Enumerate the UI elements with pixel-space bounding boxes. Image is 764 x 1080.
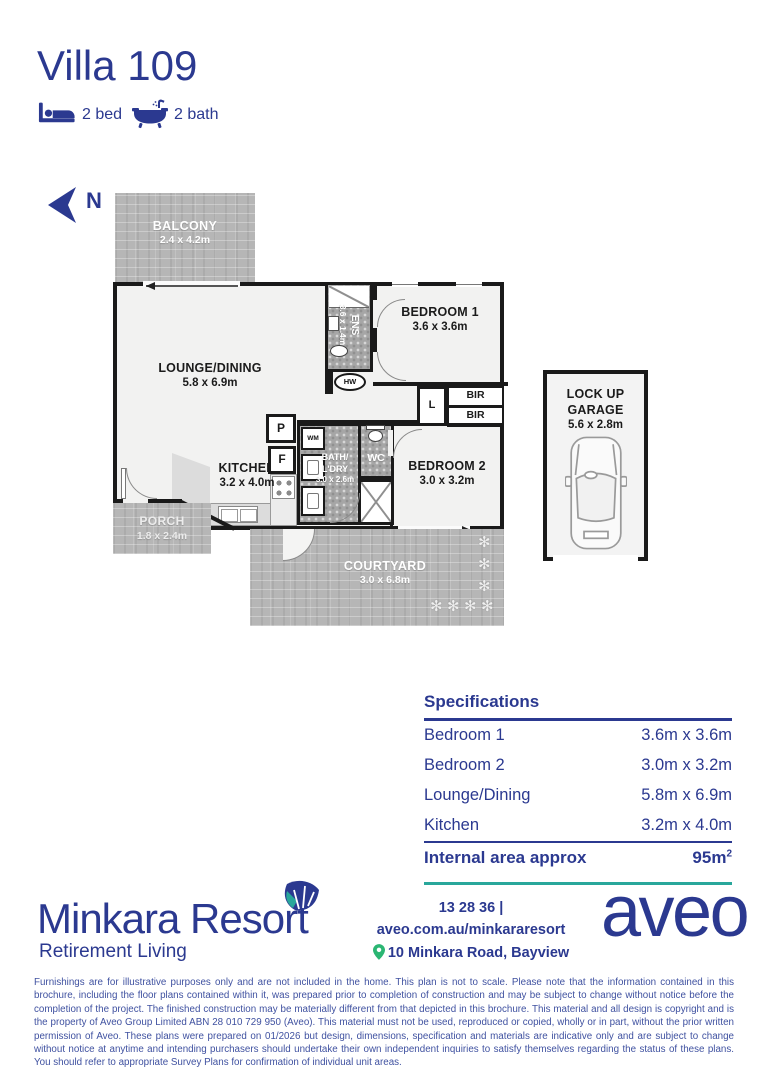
bath-label-2: L'DRY (309, 464, 361, 476)
sink-bowl (221, 509, 238, 522)
linen-cupboard: L (417, 386, 447, 426)
window (392, 281, 418, 287)
resort-tagline: Retirement Living (39, 941, 187, 963)
door-opening (388, 430, 393, 456)
resort-name: Minkara Resort (37, 895, 308, 943)
separator: | (499, 900, 503, 916)
aveo-logo: aveo (601, 876, 747, 948)
bath-label-1: BATH/ (309, 452, 361, 464)
appliance-glyph (307, 493, 319, 509)
lounge-dims: 5.8 x 6.9m (120, 376, 300, 391)
window (456, 281, 482, 287)
contact-line-1: 13 28 36 | aveo.com.au/minkararesort (348, 897, 594, 942)
bedroom2-dims: 3.0 x 3.2m (390, 474, 504, 489)
courtyard-dims: 3.0 x 6.8m (285, 574, 485, 588)
floorplan: BALCONY 2.4 x 4.2m LOUNGE/DINING 5.8 x 6… (0, 0, 764, 660)
shower-room (358, 479, 394, 525)
ens-label: ENS (348, 285, 361, 365)
garage-dims: 5.6 x 2.8m (543, 418, 648, 433)
total-value: 95m2 (692, 848, 732, 868)
table-row: Lounge/Dining 5.8m x 6.9m (424, 781, 732, 811)
spec-value: 3.2m x 4.0m (641, 816, 732, 835)
contact-line-2: 10 Minkara Road, Bayview (348, 942, 594, 964)
spec-value: 5.8m x 6.9m (641, 786, 732, 805)
balcony-dims: 2.4 x 4.2m (115, 234, 255, 248)
pantry: P (266, 414, 296, 443)
garage-label-2: GARAGE (543, 402, 648, 418)
location-pin-icon (373, 944, 385, 960)
washing-machine: WM (301, 427, 325, 450)
plant-icon: ✻ (478, 555, 491, 573)
total-label: Internal area approx (424, 848, 587, 868)
plant-icon: ✻ (464, 597, 477, 615)
spec-label: Bedroom 1 (424, 726, 505, 745)
kitchen-dims: 3.2 x 4.0m (192, 476, 302, 491)
address: 10 Minkara Road, Bayview (388, 945, 569, 961)
plant-icon: ✻ (447, 597, 460, 615)
spec-label: Lounge/Dining (424, 786, 530, 805)
specs-title: Specifications (424, 692, 732, 718)
bedroom2-label: BEDROOM 2 (390, 458, 504, 474)
plant-icon: ✻ (478, 577, 491, 595)
disclaimer-text: Furnishings are for illustrative purpose… (34, 976, 734, 1070)
lounge-label: LOUNGE/DINING (120, 360, 300, 376)
bath-dims: 3.0 x 2.6m (309, 475, 361, 485)
plant-icon: ✻ (481, 597, 494, 615)
porch-dims: 1.8 x 2.4m (113, 530, 211, 544)
garage-label-1: LOCK UP (543, 386, 648, 402)
spec-value: 3.6m x 3.6m (641, 726, 732, 745)
plant-icon: ✻ (430, 597, 443, 615)
wall (373, 282, 377, 300)
fridge-space: F (268, 446, 296, 474)
phone-number: 13 28 36 (439, 900, 495, 916)
laundry-appliance (301, 486, 325, 516)
table-row: Bedroom 1 3.6m x 3.6m (424, 721, 732, 751)
garage-opening (553, 555, 638, 562)
table-total-row: Internal area approx 95m2 (424, 843, 732, 874)
sink-bowl (240, 509, 257, 522)
car-top-view (565, 434, 627, 552)
built-in-robe: BIR (447, 386, 504, 407)
porch-label: PORCH (113, 514, 211, 530)
toilet-fixture (368, 430, 383, 442)
door-leaf (121, 468, 126, 499)
table-row: Kitchen 3.2m x 4.0m (424, 811, 732, 841)
brochure-page: Villa 109 2 bed 2 bath N BALCONY (0, 0, 764, 1080)
specifications-table: Specifications Bedroom 1 3.6m x 3.6m Bed… (424, 692, 732, 885)
slider-track (146, 285, 238, 287)
slider-arrow (146, 282, 155, 290)
spec-value: 3.0m x 3.2m (641, 756, 732, 775)
plant-icon: ✻ (478, 533, 491, 551)
spec-label: Bedroom 2 (424, 756, 505, 775)
balcony-label: BALCONY (115, 218, 255, 234)
hot-water-unit: HW (334, 373, 366, 391)
spec-label: Kitchen (424, 816, 479, 835)
website-url: aveo.com.au/minkararesort (377, 922, 566, 938)
table-row: Bedroom 2 3.0m x 3.2m (424, 751, 732, 781)
leaf-icon (281, 877, 323, 913)
contact-block: 13 28 36 | aveo.com.au/minkararesort 10 … (348, 897, 594, 964)
courtyard-label: COURTYARD (285, 558, 485, 574)
ens-dims: 3.6 x 1.4m (337, 285, 348, 365)
wall (325, 372, 333, 394)
